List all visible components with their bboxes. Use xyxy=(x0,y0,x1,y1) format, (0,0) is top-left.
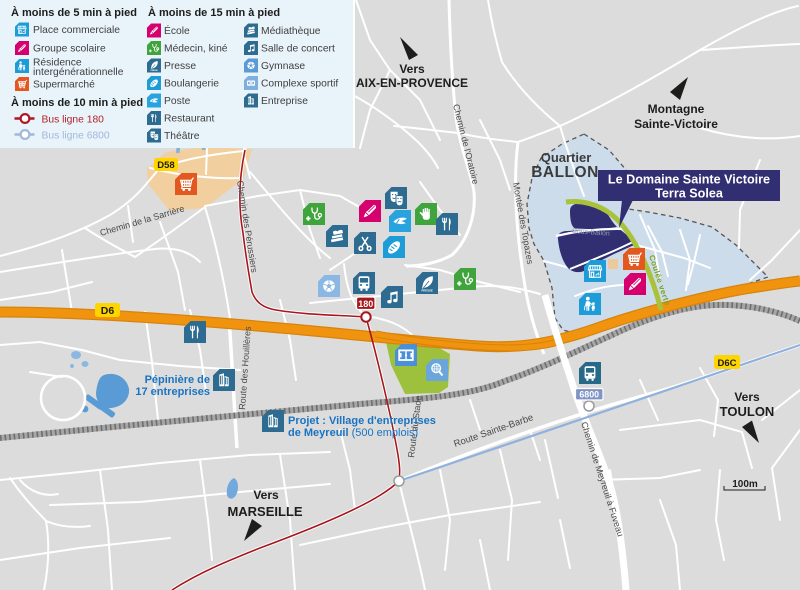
svg-text:Projet : Village d'entreprises: Projet : Village d'entreprises xyxy=(288,415,436,427)
svg-text:Bus ligne 6800: Bus ligne 6800 xyxy=(42,130,110,141)
svg-text:Médecin, kiné: Médecin, kiné xyxy=(164,44,228,55)
svg-text:180: 180 xyxy=(358,299,373,309)
svg-text:MARSEILLE: MARSEILLE xyxy=(227,504,302,519)
svg-text:Groupe scolaire: Groupe scolaire xyxy=(33,44,106,55)
svg-text:Gymnase: Gymnase xyxy=(261,61,305,72)
svg-text:Poste: Poste xyxy=(164,96,191,107)
svg-text:Terra Solea: Terra Solea xyxy=(655,187,724,201)
svg-text:D6C: D6C xyxy=(717,358,736,369)
svg-text:Restaurant: Restaurant xyxy=(164,114,215,125)
svg-text:AIX-EN-PROVENCE: AIX-EN-PROVENCE xyxy=(356,76,468,90)
svg-text:Presse: Presse xyxy=(164,61,196,72)
svg-text:Vers: Vers xyxy=(734,390,760,404)
svg-text:D58: D58 xyxy=(157,160,174,171)
svg-text:À moins de 5 min à pied: À moins de 5 min à pied xyxy=(11,6,137,19)
svg-text:Pépinière de: Pépinière de xyxy=(145,374,210,386)
svg-text:Boulangerie: Boulangerie xyxy=(164,79,219,90)
svg-text:À moins de 10 min à pied: À moins de 10 min à pied xyxy=(11,96,143,109)
svg-text:École: École xyxy=(164,24,190,37)
svg-text:BALLON: BALLON xyxy=(531,164,599,181)
svg-text:TOULON: TOULON xyxy=(720,404,775,419)
svg-text:de Meyreuil (500 emplois): de Meyreuil (500 emplois) xyxy=(288,427,418,439)
svg-text:Sainte-Victoire: Sainte-Victoire xyxy=(634,117,718,131)
svg-text:Médiathèque: Médiathèque xyxy=(261,26,321,37)
svg-text:Montagne: Montagne xyxy=(648,102,705,116)
svg-text:D6: D6 xyxy=(101,305,115,317)
svg-text:intergénérationnelle: intergénérationnelle xyxy=(33,67,124,78)
svg-text:À moins de 15 min à pied: À moins de 15 min à pied xyxy=(148,6,280,19)
svg-text:Vers: Vers xyxy=(399,62,425,76)
svg-text:6800: 6800 xyxy=(579,390,599,400)
svg-text:Place commerciale: Place commerciale xyxy=(33,25,120,36)
svg-text:Complexe sportif: Complexe sportif xyxy=(261,79,338,90)
svg-text:17 entreprises: 17 entreprises xyxy=(135,386,210,398)
svg-text:Quartier: Quartier xyxy=(541,150,592,165)
svg-text:Entreprise: Entreprise xyxy=(261,96,308,107)
svg-text:Salle de concert: Salle de concert xyxy=(261,44,335,55)
svg-text:100m: 100m xyxy=(732,479,758,490)
svg-text:Supermarché: Supermarché xyxy=(33,80,95,91)
svg-text:Théâtre: Théâtre xyxy=(164,131,200,142)
svg-text:Vers: Vers xyxy=(253,488,279,502)
svg-text:Bus ligne 180: Bus ligne 180 xyxy=(42,114,105,125)
svg-text:Le Domaine Sainte Victoire: Le Domaine Sainte Victoire xyxy=(608,173,770,187)
